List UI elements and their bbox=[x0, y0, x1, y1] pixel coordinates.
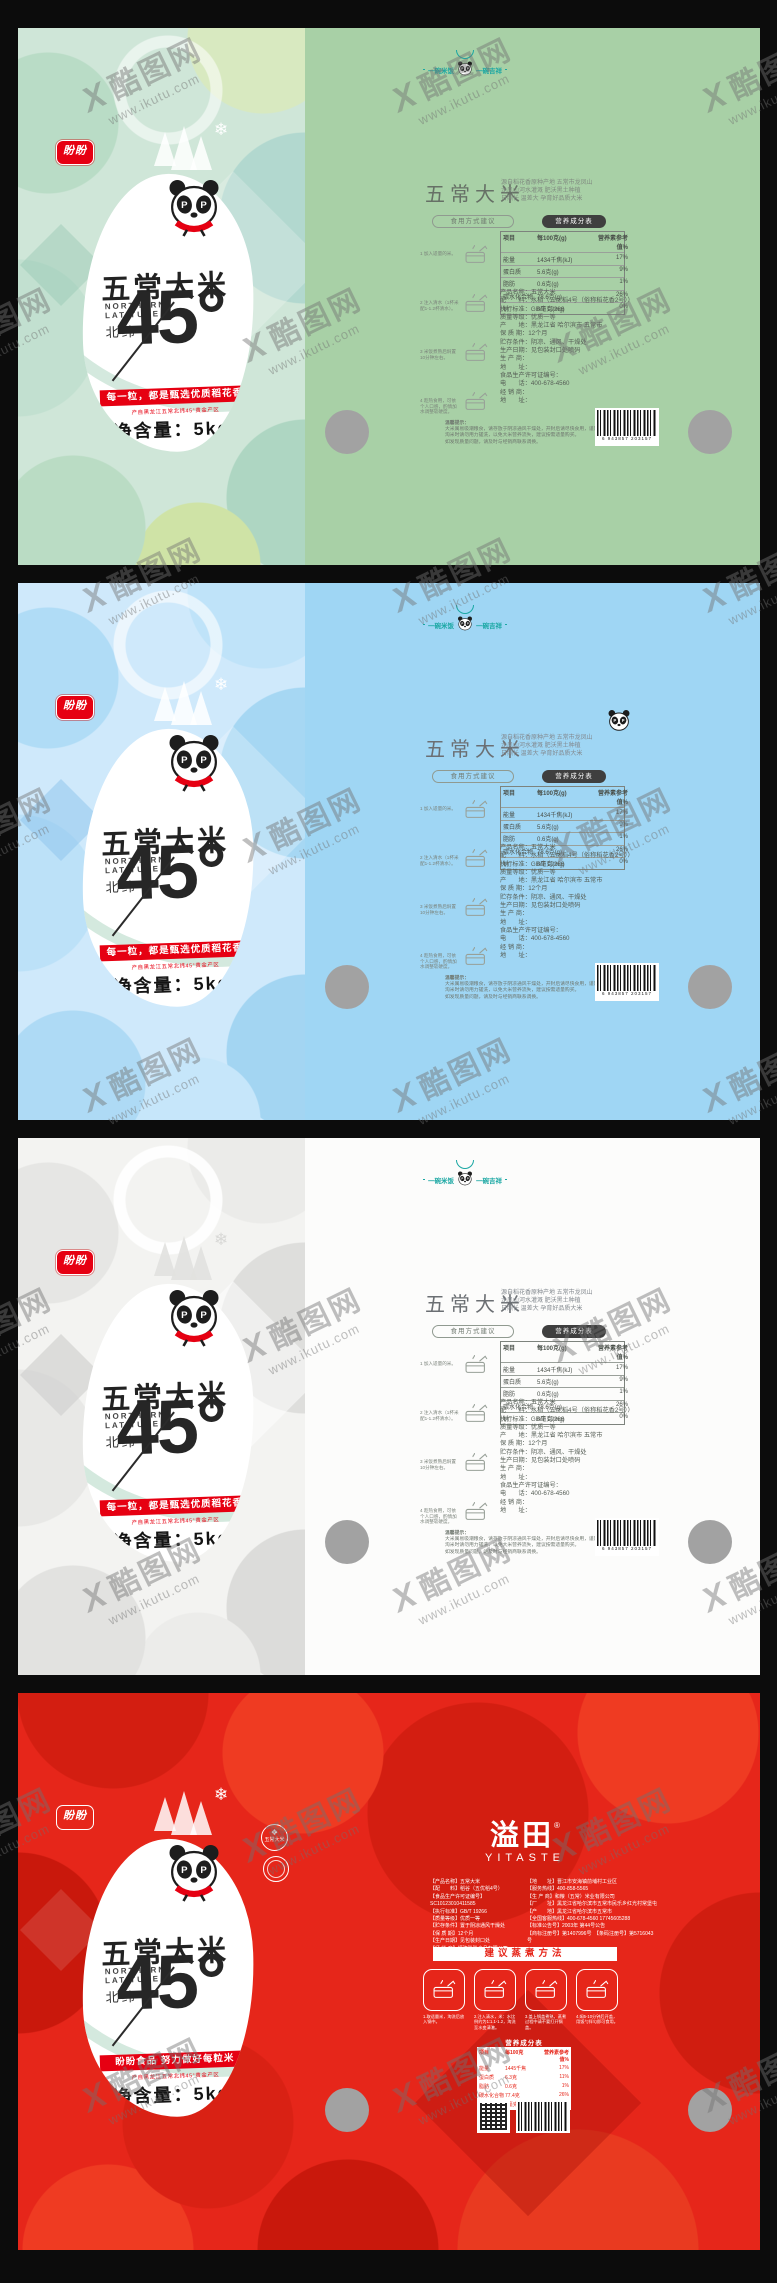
step-caption: 3.盖上锅盖煮熟，蒸煮过程中请不要打开锅盖。 bbox=[525, 2014, 569, 2030]
description-line: 源自稻花香原种产地 五常市龙凤山 bbox=[501, 179, 593, 187]
nutrition-label: 营养成分表 bbox=[542, 770, 606, 783]
cooking-step: 2 注入清水（1杯米 配1-1.2杯清水）。 bbox=[420, 287, 498, 336]
snowflake-icon: ❄ bbox=[214, 675, 228, 695]
pot-icon bbox=[584, 1979, 610, 2002]
info-line: 【厂 址】黑龙江省哈尔滨市五常市民乐乡红光村常堡屯 bbox=[527, 1901, 657, 1908]
nutrition-row: 蛋白质5.6克(g)9% bbox=[501, 265, 624, 277]
pot-icon bbox=[482, 1979, 508, 2002]
info-line: 【贮存条件】置于阴凉通风干燥处 bbox=[430, 1923, 518, 1930]
cooking-step: 2 注入清水（1杯米 配1-1.2杯清水）。 bbox=[420, 842, 498, 891]
handle-hole bbox=[688, 2088, 732, 2132]
info-line: 保 质 期：12个月 bbox=[500, 1440, 650, 1448]
barcode bbox=[516, 2100, 570, 2133]
svg-text:P: P bbox=[200, 1865, 207, 1876]
nutrition-label: 营养成分表 bbox=[477, 2037, 571, 2047]
info-line: 贮存条件：阴凉、通风、干燥处 bbox=[500, 894, 650, 902]
back-panel-white: 一碗米饭 PP 一碗吉祥 五常大米 源自稻花香原种产地 五常市龙凤山龙凤山河水灌… bbox=[305, 1138, 760, 1675]
cooking-step: 3.盖上锅盖煮熟，蒸煮过程中请不要打开锅盖。 bbox=[525, 1969, 569, 2030]
barcode-bars bbox=[518, 2102, 568, 2131]
back-panel-green: 一碗米饭 PP 一碗吉祥 五常大米 源自稻花香原种产地 五常市龙凤山龙凤山河水灌… bbox=[305, 28, 760, 565]
pot-icon bbox=[463, 293, 489, 316]
nutrition-row: 蛋白质5.6克(g)9% bbox=[501, 1375, 624, 1387]
panda-mascot-icon: PP bbox=[166, 178, 222, 238]
usage-label: 食用方式建议 bbox=[432, 770, 514, 783]
svg-text:P: P bbox=[200, 755, 207, 766]
front-panel-red: 盼盼 ❖五常大米 ❄ 五常大米 NORTHERNLATITUDE 北纬 45° … bbox=[18, 1693, 305, 2250]
pot-icon bbox=[463, 946, 489, 969]
panpan-brand-logo: 盼盼 bbox=[56, 1805, 94, 1830]
product-info-list: 产品名称：五常大米配 料：水稻（五优稻4号（俗称稻花香2号））执行标准：GB/T… bbox=[500, 844, 650, 960]
latitude-value: 45° bbox=[115, 278, 227, 358]
panda-face-icon: PP bbox=[457, 1171, 473, 1188]
cooking-steps: 1 加入适量的米。2 注入清水（1杯米 配1-1.2杯清水）。3 米饭煮熟后焖置… bbox=[420, 238, 498, 434]
info-line: 【产 地】黑龙江省哈尔滨市五常市 bbox=[527, 1909, 657, 1916]
qr-code bbox=[477, 2100, 510, 2133]
pot-icon bbox=[463, 342, 489, 365]
info-line: 质量等级：优质一等 bbox=[500, 1424, 650, 1432]
back-description: 源自稻花香原种产地 五常市龙凤山龙凤山河水灌溉 肥沃黑土种植日照长 温差大 孕育… bbox=[501, 1289, 593, 1313]
nutrition-row: 能量1434千焦(kJ)17% bbox=[501, 1362, 624, 1374]
latitude-value: 45° bbox=[115, 1388, 227, 1468]
cooking-step: 1.取适量米，淘洗后放入锅中。 bbox=[423, 1969, 467, 2030]
info-line: 【商标注册号】第1407996号 【条码注册号】第5716043号 bbox=[527, 1931, 657, 1946]
package-red: 盼盼 ❖五常大米 ❄ 五常大米 NORTHERNLATITUDE 北纬 45° … bbox=[18, 1693, 760, 2250]
handle-hole bbox=[688, 1520, 732, 1564]
barcode-number: 6 943857 203157 bbox=[597, 991, 657, 996]
slogan-right: 一碗吉祥 bbox=[476, 65, 502, 75]
pot-icon bbox=[463, 848, 489, 871]
panda-face-icon: PP bbox=[457, 616, 473, 633]
barcode-number: 6 943857 203157 bbox=[597, 1546, 657, 1551]
info-line: 地 址： bbox=[500, 1507, 650, 1515]
handle-hole bbox=[325, 2088, 369, 2132]
yitaste-cn: 溢田 bbox=[490, 1820, 554, 1852]
svg-text:P: P bbox=[181, 1310, 188, 1321]
info-line: 质量等级：优质一等 bbox=[500, 314, 650, 322]
cooking-steps: 1 加入适量的米。2 注入清水（1杯米 配1-1.2杯清水）。3 米饭煮熟后焖置… bbox=[420, 793, 498, 989]
front-panel-green: 盼盼 ❄ 五常大米 NORTHERNLATITUDE 北纬 45° 每一粒，都是… bbox=[18, 28, 305, 565]
barcode-number: 6 943857 203157 bbox=[597, 436, 657, 441]
back-panel-red: 溢田® YITASTE 【产品名称】五常大米【配 料】稻谷（五优稻4号）【食品生… bbox=[305, 1693, 760, 2250]
description-line: 日照长 温差大 孕育好品质大米 bbox=[501, 1305, 593, 1313]
panda-mascot-icon: PP bbox=[166, 1288, 222, 1348]
handle-hole bbox=[688, 965, 732, 1009]
step-box bbox=[525, 1969, 567, 2011]
info-line: 配 料：水稻（五优稻4号（俗称稻花香2号）） bbox=[500, 297, 650, 305]
info-line: 电 话：400-678-4560 bbox=[500, 935, 650, 943]
cooking-steps: 1 加入适量的米。2 注入清水（1杯米 配1-1.2杯清水）。3 米饭煮熟后焖置… bbox=[420, 1348, 498, 1544]
svg-text:P: P bbox=[200, 200, 207, 211]
cooking-steps: 1.取适量米，淘洗后放入锅中。2.注入清水，米：水比例约为1:1.1-1.2，淘… bbox=[423, 1969, 620, 2030]
info-line: 生 产 商： bbox=[500, 355, 650, 363]
nutrition-row: 能量1445千焦17% bbox=[478, 2064, 570, 2073]
nutrition-header-row: 项目每100克(g)营养素参考值% bbox=[501, 787, 624, 807]
info-line: 【食品生产许可证编号】SC10123010411585 bbox=[430, 1894, 518, 1909]
registered-mark: ® bbox=[554, 1821, 560, 1830]
slogan-left: 一碗米饭 bbox=[428, 620, 454, 630]
handle-hole bbox=[688, 410, 732, 454]
svg-text:P: P bbox=[622, 718, 625, 723]
latitude-value: 45° bbox=[115, 1943, 227, 2023]
info-line: 电 话：400-678-4560 bbox=[500, 1490, 650, 1498]
pot-icon bbox=[463, 1452, 489, 1475]
info-line: 电 话：400-678-4560 bbox=[500, 380, 650, 388]
nutrition-row: 能量1434千焦(kJ)17% bbox=[501, 252, 624, 264]
pot-icon bbox=[463, 244, 489, 267]
nutrition-row: 能量1434千焦(kJ)17% bbox=[501, 807, 624, 819]
info-line: 贮存条件：阴凉、通风、干燥处 bbox=[500, 1449, 650, 1457]
rice-bowl-icon bbox=[456, 1160, 474, 1169]
cooking-method-banner: 建议蒸煮方法 bbox=[433, 1947, 617, 1961]
step-box bbox=[576, 1969, 618, 2011]
panda-mascot-icon: PP bbox=[166, 733, 222, 793]
origin-certification-badge: ❖五常大米 bbox=[261, 1824, 288, 1851]
svg-text:P: P bbox=[181, 200, 188, 211]
description-line: 日照长 温差大 孕育好品质大米 bbox=[501, 195, 593, 203]
pot-icon bbox=[463, 897, 489, 920]
barcode-bars bbox=[597, 1520, 657, 1546]
info-line: 【服务热线】400-858-5565 bbox=[527, 1886, 657, 1893]
usage-label: 食用方式建议 bbox=[432, 215, 514, 228]
pot-icon bbox=[463, 1501, 489, 1524]
brand-name: 盼盼 bbox=[63, 700, 87, 712]
nutrition-row: 蛋白质5.6克(g)9% bbox=[501, 820, 624, 832]
info-line: 地 址： bbox=[500, 397, 650, 405]
nutrition-row: 脂肪0.6克(g)1% bbox=[501, 832, 624, 844]
info-line: 贮存条件：阴凉、通风、干燥处 bbox=[500, 339, 650, 347]
description-line: 龙凤山河水灌溉 肥沃黑土种植 bbox=[501, 187, 593, 195]
info-line: 配 料：水稻（五优稻4号（俗称稻花香2号）） bbox=[500, 852, 650, 860]
cooking-step: 2.注入清水，米：水比例约为1:1.1-1.2，淘洗至水变清澈。 bbox=[474, 1969, 518, 2030]
product-info-list: 产品名称：五常大米配 料：水稻（五优稻4号（俗称稻花香2号））执行标准：GB/T… bbox=[500, 289, 650, 405]
description-line: 源自稻花香原种产地 五常市龙凤山 bbox=[501, 734, 593, 742]
pot-icon bbox=[463, 1354, 489, 1377]
barcode-bars bbox=[597, 410, 657, 436]
slogan-left: 一碗米饭 bbox=[428, 65, 454, 75]
info-line: 生 产 商： bbox=[500, 1465, 650, 1473]
handle-hole bbox=[325, 965, 369, 1009]
handle-hole bbox=[325, 410, 369, 454]
product-info-columns: 【产品名称】五常大米【配 料】稻谷（五优稻4号）【食品生产许可证编号】SC101… bbox=[430, 1879, 657, 1953]
panda-face-icon: PP bbox=[607, 709, 631, 735]
info-line: 【执行标准】GB/T 19266 bbox=[430, 1909, 518, 1916]
bowl-slogan-logo: 一碗米饭 PP 一碗吉祥 bbox=[423, 1160, 507, 1188]
cooking-step: 3 米饭煮熟后焖置 10分钟左右。 bbox=[420, 1446, 498, 1495]
snowflake-icon: ❄ bbox=[214, 1785, 228, 1805]
brand-name: 盼盼 bbox=[63, 1810, 87, 1822]
bowl-slogan-logo: 一碗米饭 PP 一碗吉祥 bbox=[423, 605, 507, 633]
design-sheet: { "watermark": {"mark": "X", "brand": "酷… bbox=[0, 0, 777, 2283]
badge-label: 五常大米 bbox=[264, 1837, 284, 1843]
nutrition-row: 脂肪0.6克(g)1% bbox=[501, 1387, 624, 1399]
step-caption: 4.焖5-10分钟后开盖，用饭勺拌匀即可食用。 bbox=[576, 2014, 620, 2025]
svg-text:P: P bbox=[181, 1865, 188, 1876]
description-line: 龙凤山河水灌溉 肥沃黑土种植 bbox=[501, 1297, 593, 1305]
info-line: 配 料：水稻（五优稻4号（俗称稻花香2号）） bbox=[500, 1407, 650, 1415]
pot-icon bbox=[463, 799, 489, 822]
yitaste-logo: 溢田® YITASTE bbox=[465, 1821, 585, 1864]
cooking-step: 4.焖5-10分钟后开盖，用饭勺拌匀即可食用。 bbox=[576, 1969, 620, 2030]
yitaste-en: YITASTE bbox=[465, 1852, 585, 1864]
cooking-step: 1 加入适量的米。 bbox=[420, 238, 498, 287]
nutrition-header-row: 项目每100克营养素参考值% bbox=[478, 2048, 570, 2064]
slogan-left: 一碗米饭 bbox=[428, 1175, 454, 1185]
cooking-step: 2 注入清水（1杯米 配1-1.2杯清水）。 bbox=[420, 1397, 498, 1446]
info-line: 地 址： bbox=[500, 952, 650, 960]
cooking-step: 3 米饭煮熟后焖置 10分钟左右。 bbox=[420, 891, 498, 940]
cooking-step: 1 加入适量的米。 bbox=[420, 793, 498, 842]
panda-mascot-icon: PP bbox=[166, 1843, 222, 1903]
info-line: 经 销 商： bbox=[500, 389, 650, 397]
info-line: 【生产日期】见包装封口处 bbox=[430, 1938, 518, 1945]
info-line: 地 址： bbox=[500, 364, 650, 372]
front-panel-blue: 盼盼 ❄ 五常大米 NORTHERNLATITUDE 北纬 45° 每一粒，都是… bbox=[18, 583, 305, 1120]
info-line: 经 销 商： bbox=[500, 944, 650, 952]
panpan-brand-logo: 盼盼 bbox=[56, 140, 94, 165]
info-line: 地 址： bbox=[500, 1474, 650, 1482]
handle-hole bbox=[325, 1520, 369, 1564]
barcode: 6 943857 203157 bbox=[595, 1518, 659, 1556]
rice-bowl-icon bbox=[456, 605, 474, 614]
panpan-brand-logo: 盼盼 bbox=[56, 1250, 94, 1275]
back-description: 源自稻花香原种产地 五常市龙凤山龙凤山河水灌溉 肥沃黑土种植日照长 温差大 孕育… bbox=[501, 734, 593, 758]
info-line: 经 销 商： bbox=[500, 1499, 650, 1507]
nutrition-label: 营养成分表 bbox=[542, 1325, 606, 1338]
step-box bbox=[423, 1969, 465, 2011]
pot-icon bbox=[463, 1403, 489, 1426]
pot-icon bbox=[533, 1979, 559, 2002]
round-stamp-badge bbox=[263, 1856, 289, 1882]
brand-name: 盼盼 bbox=[63, 145, 87, 157]
slogan-right: 一碗吉祥 bbox=[476, 1175, 502, 1185]
barcode-bars bbox=[597, 965, 657, 991]
svg-text:P: P bbox=[614, 718, 617, 723]
svg-text:P: P bbox=[181, 755, 188, 766]
nutrition-header-row: 项目每100克(g)营养素参考值% bbox=[501, 1342, 624, 1362]
brand-name: 盼盼 bbox=[63, 1255, 87, 1267]
bowl-slogan-logo: 一碗米饭 PP 一碗吉祥 bbox=[423, 50, 507, 78]
snowflake-icon: ❄ bbox=[214, 1230, 228, 1250]
step-box bbox=[474, 1969, 516, 2011]
barcode: 6 943857 203157 bbox=[595, 963, 659, 1001]
nutrition-label: 营养成分表 bbox=[542, 215, 606, 228]
nutrition-row: 脂肪0.6克(g)1% bbox=[501, 277, 624, 289]
info-line: 执行标准：GB/T 19266 bbox=[500, 306, 650, 314]
info-line: 【配 料】稻谷（五优稻4号） bbox=[430, 1886, 518, 1893]
usage-label: 食用方式建议 bbox=[432, 1325, 514, 1338]
info-line: 质量等级：优质一等 bbox=[500, 869, 650, 877]
svg-text:P: P bbox=[200, 1310, 207, 1321]
cooking-step: 1 加入适量的米。 bbox=[420, 1348, 498, 1397]
barcode: 6 943857 203157 bbox=[595, 408, 659, 446]
panpan-brand-logo: 盼盼 bbox=[56, 695, 94, 720]
nutrition-row: 碳水化合物77.4克26% bbox=[478, 2091, 570, 2100]
nutrition-row: 脂肪0.6克1% bbox=[478, 2082, 570, 2091]
step-caption: 2.注入清水，米：水比例约为1:1.1-1.2，淘洗至水变清澈。 bbox=[474, 2014, 518, 2030]
nutrition-header-row: 项目每100克(g)营养素参考值% bbox=[501, 232, 624, 252]
step-caption: 1.取适量米，淘洗后放入锅中。 bbox=[423, 2014, 467, 2025]
nutrition-row: 蛋白质6.3克11% bbox=[478, 2073, 570, 2082]
info-line: 【标准公告号】2003年 第44号公告 bbox=[527, 1923, 657, 1930]
package-white: 盼盼 ❄ 五常大米 NORTHERNLATITUDE 北纬 45° 每一粒，都是… bbox=[18, 1138, 760, 1675]
front-panel-white: 盼盼 ❄ 五常大米 NORTHERNLATITUDE 北纬 45° 每一粒，都是… bbox=[18, 1138, 305, 1675]
info-line: 保 质 期：12个月 bbox=[500, 885, 650, 893]
slogan-right: 一碗吉祥 bbox=[476, 620, 502, 630]
package-blue: 盼盼 ❄ 五常大米 NORTHERNLATITUDE 北纬 45° 每一粒，都是… bbox=[18, 583, 760, 1120]
info-line: 生 产 商： bbox=[500, 910, 650, 918]
back-description: 源自稻花香原种产地 五常市龙凤山龙凤山河水灌溉 肥沃黑土种植日照长 温差大 孕育… bbox=[501, 179, 593, 203]
back-panel-blue: 一碗米饭 PP 一碗吉祥 PP 五常大米 源自稻花香原种产地 五常市龙凤山龙凤山… bbox=[305, 583, 760, 1120]
description-line: 日照长 温差大 孕育好品质大米 bbox=[501, 750, 593, 758]
package-green: 盼盼 ❄ 五常大米 NORTHERNLATITUDE 北纬 45° 每一粒，都是… bbox=[18, 28, 760, 565]
product-info-list: 产品名称：五常大米配 料：水稻（五优稻4号（俗称稻花香2号））执行标准：GB/T… bbox=[500, 1399, 650, 1515]
cooking-step: 3 米饭煮熟后焖置 10分钟左右。 bbox=[420, 336, 498, 385]
pot-icon bbox=[463, 391, 489, 414]
description-line: 龙凤山河水灌溉 肥沃黑土种植 bbox=[501, 742, 593, 750]
latitude-value: 45° bbox=[115, 833, 227, 913]
pot-icon bbox=[431, 1979, 457, 2002]
description-line: 源自稻花香原种产地 五常市龙凤山 bbox=[501, 1289, 593, 1297]
badge-emblem-icon: ❖ bbox=[262, 1829, 287, 1837]
info-line: 执行标准：GB/T 19266 bbox=[500, 861, 650, 869]
panda-face-icon: PP bbox=[457, 61, 473, 78]
rice-bowl-icon bbox=[456, 50, 474, 59]
info-line: 执行标准：GB/T 19266 bbox=[500, 1416, 650, 1424]
info-line: 保 质 期：12个月 bbox=[500, 330, 650, 338]
info-line: 地 址： bbox=[500, 919, 650, 927]
snowflake-icon: ❄ bbox=[214, 120, 228, 140]
